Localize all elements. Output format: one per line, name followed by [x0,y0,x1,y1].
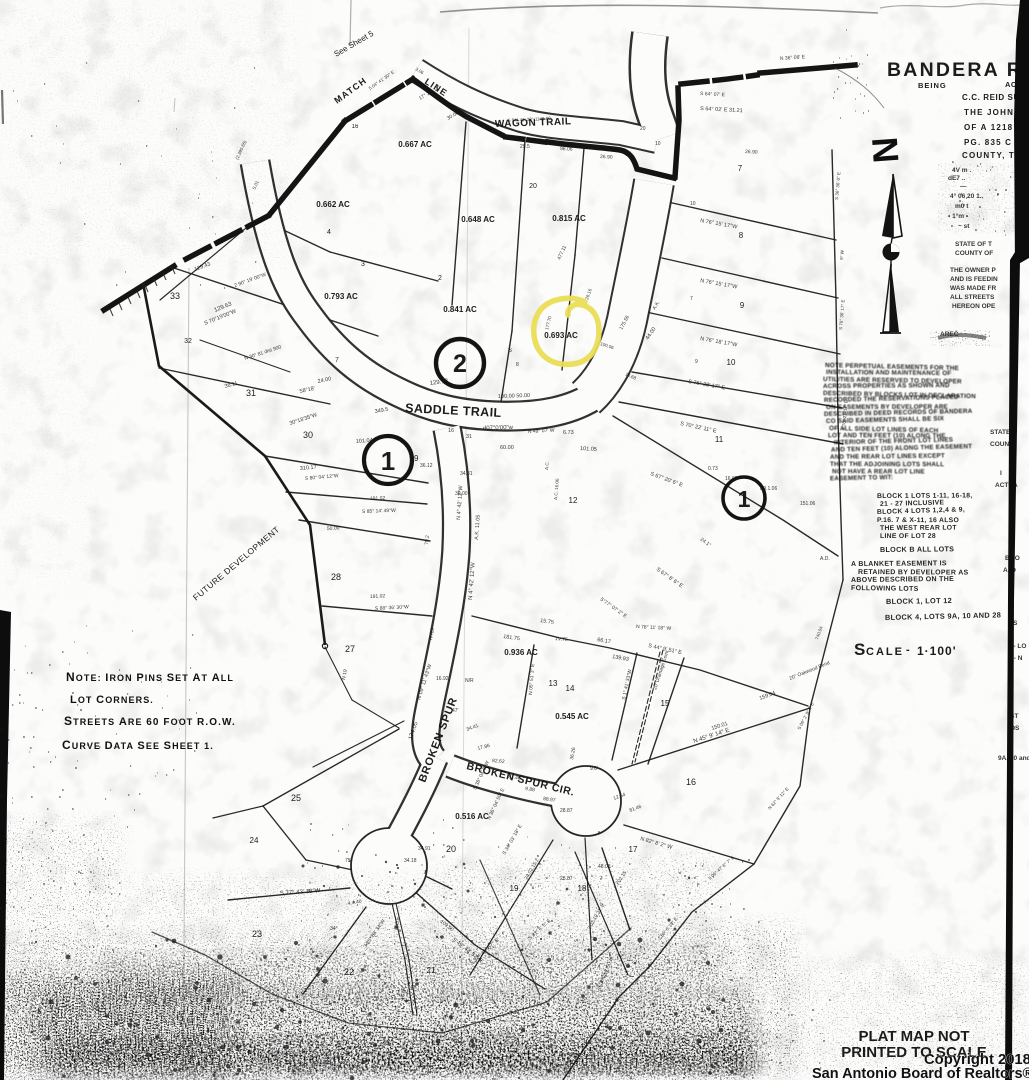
svg-text:I: I [1000,470,1002,477]
svg-text:BLOCK 1 LOTS 1-11, 16-18,: BLOCK 1 LOTS 1-11, 16-18, [877,492,973,500]
svg-text:BLOCK B ALL LOTS: BLOCK B ALL LOTS [880,544,954,554]
svg-text:THE WEST REAR LOT: THE WEST REAR LOT [880,525,957,532]
svg-text:0.693 AC: 0.693 AC [544,331,578,340]
svg-text:191.02: 191.02 [370,495,386,502]
svg-text:9: 9 [740,301,745,310]
svg-text:13: 13 [549,679,558,688]
svg-text:A BLANKET EASEMENT IS: A BLANKET EASEMENT IS [851,560,947,568]
svg-text:THE JOHN: THE JOHN [964,108,1014,117]
svg-text:16: 16 [352,124,359,130]
svg-text:9° W: 9° W [839,249,845,260]
svg-text:7: 7 [690,296,693,302]
svg-text:1: 1 [381,446,395,476]
svg-text:EASEMENT TO WIT:: EASEMENT TO WIT: [830,474,893,482]
svg-text:101.05: 101.05 [580,446,597,453]
svg-text:-: - [906,644,910,656]
svg-text:8: 8 [516,362,519,368]
svg-text:4: 4 [327,229,331,236]
svg-text:0.662 AC: 0.662 AC [316,200,350,209]
svg-text:24: 24 [250,836,259,845]
svg-text:47': 47' [452,708,459,714]
svg-text:San Antonio Board of Realtors®: San Antonio Board of Realtors® [812,1066,1029,1080]
svg-text:0.936 AC: 0.936 AC [504,648,538,657]
svg-text:34.18: 34.18 [404,858,417,864]
svg-text:31: 31 [466,434,472,440]
svg-text:LINE OF LOT 28: LINE OF LOT 28 [880,533,936,540]
svg-text:28: 28 [331,572,341,582]
svg-text:OF A 1218: OF A 1218 [964,123,1013,132]
svg-text:10: 10 [655,141,661,147]
svg-text:26.90: 26.90 [745,149,758,156]
svg-text:HEREON OPE: HEREON OPE [952,303,996,310]
svg-text:P.16. 7 & X-11, 16 ALSO: P.16. 7 & X-11, 16 ALSO [877,517,959,524]
svg-text:ACROSS PROPERTIES AS SHOWN AND: ACROSS PROPERTIES AS SHOWN AND [823,382,950,390]
svg-text:3: 3 [361,261,365,268]
svg-text:FOLLOWING LOTS: FOLLOWING LOTS [851,585,919,593]
svg-text:COUNTY, T: COUNTY, T [962,151,1015,160]
svg-text:34.91: 34.91 [418,846,431,852]
svg-text:ALL STREETS: ALL STREETS [950,294,995,301]
svg-text:7: 7 [738,164,743,173]
svg-text:STREETS ARE 60 FOOT R.O.W.: STREETS ARE 60 FOOT R.O.W. [64,714,236,728]
svg-text:9A, 10 and LS: 9A, 10 and LS [998,755,1029,762]
svg-text:82.62: 82.62 [492,758,505,765]
svg-text:0.841 AC: 0.841 AC [443,305,477,314]
svg-text:98.06: 98.06 [560,146,573,153]
svg-text:A.D.: A.D. [820,556,830,562]
svg-text:0.648 AC: 0.648 AC [461,215,495,224]
svg-text:79.2: 79.2 [424,535,431,545]
svg-text:THAT THE ADJOINING LOTS SHALL: THAT THE ADJOINING LOTS SHALL [830,461,944,468]
svg-text:CALE: CALE [866,646,904,658]
svg-text:1·100': 1·100' [917,644,957,658]
svg-text:151.06: 151.06 [800,501,816,507]
svg-text:29: 29 [410,454,419,463]
svg-text:16.60: 16.60 [725,476,738,482]
svg-text:0.516 AC: 0.516 AC [455,812,489,821]
svg-text:16: 16 [448,428,454,434]
svg-text:10: 10 [727,358,736,367]
svg-text:BLOCK 1, LOT 12: BLOCK 1, LOT 12 [886,596,952,606]
svg-text:30: 30 [303,430,313,440]
svg-text:CURVE DATA SEE SHEET 1.: CURVE DATA SEE SHEET 1. [62,738,214,752]
svg-text:50.00: 50.00 [327,525,340,532]
svg-text:20: 20 [446,844,456,854]
svg-text:9.6': 9.6' [590,766,598,772]
svg-text:9: 9 [695,359,698,365]
svg-text:27: 27 [345,644,355,654]
svg-text:0.793 AC: 0.793 AC [324,292,358,301]
svg-text:PG. 835 C: PG. 835 C [964,138,1012,147]
svg-text:S: S [854,640,865,659]
svg-text:12: 12 [569,496,578,505]
svg-text:N/R: N/R [465,678,474,684]
svg-text:S 85° 14' 49°W: S 85° 14' 49°W [362,508,396,515]
svg-text:0.73: 0.73 [708,466,718,472]
svg-text:AND THE REAR LOT LINES EXCEPT: AND THE REAR LOT LINES EXCEPT [830,453,945,461]
svg-text:AND IS FEEDIN: AND IS FEEDIN [950,276,998,283]
svg-text:A9.1.06: A9.1.06 [760,486,777,492]
svg-text:7: 7 [335,357,339,364]
svg-text:LOT CORNERS.: LOT CORNERS. [70,694,154,706]
svg-text:0.815 AC: 0.815 AC [552,214,586,223]
svg-text:S: S [508,348,512,354]
svg-text:BEING: BEING [918,81,947,90]
svg-text:STATE OF T: STATE OF T [955,241,992,248]
svg-text:16.92: 16.92 [436,676,449,682]
svg-text:ABOVE DESCRIBED ON THE: ABOVE DESCRIBED ON THE [851,576,954,584]
svg-text:14: 14 [566,684,575,693]
svg-text:29.5: 29.5 [520,144,530,150]
svg-text:191.02: 191.02 [370,593,386,600]
svg-text:30.00: 30.00 [455,491,468,497]
svg-text:0.667 AC: 0.667 AC [398,140,432,149]
svg-text:36.12: 36.12 [420,463,433,469]
svg-text:10: 10 [690,201,696,207]
svg-text:C.C. REID SU: C.C. REID SU [962,93,1020,102]
svg-text:THE OWNER P: THE OWNER P [950,267,997,274]
svg-text:2: 2 [438,275,442,282]
svg-text:BANDERA RI: BANDERA RI [887,59,1029,81]
svg-text:33: 33 [170,291,180,301]
svg-text:1: 1 [738,486,751,512]
svg-text:d07°0'00"w: d07°0'00"w [483,425,514,432]
svg-text:WAS MADE FR: WAS MADE FR [950,285,997,292]
svg-text:32: 32 [184,338,192,345]
svg-text:A.C.: A.C. [544,461,550,470]
svg-text:60.00: 60.00 [500,445,514,451]
svg-text:16: 16 [686,777,696,787]
svg-text:1V.75: 1V.75 [555,636,568,643]
svg-text:6.73: 6.73 [563,430,574,436]
svg-text:2: 2 [453,350,467,378]
svg-text:20: 20 [529,183,537,190]
svg-text:28.87: 28.87 [560,808,573,814]
svg-text:34.31: 34.31 [460,471,473,477]
svg-text:100.00 50.00: 100.00 50.00 [498,393,530,400]
svg-text:N: N [864,136,907,165]
svg-text:15: 15 [661,699,670,708]
svg-text:26.90: 26.90 [600,154,613,161]
svg-text:25: 25 [291,793,301,803]
svg-text:20: 20 [640,126,646,132]
svg-text:NOTE: IRON PINS SET AT ALL: NOTE: IRON PINS SET AT ALL [66,670,234,684]
svg-text:0.545 AC: 0.545 AC [555,712,589,721]
svg-text:8: 8 [739,231,744,240]
svg-text:11: 11 [715,435,724,444]
svg-text:COUNTY OF: COUNTY OF [955,250,993,257]
svg-text:31: 31 [246,388,256,398]
svg-text:STATE: STATE [990,429,1011,436]
